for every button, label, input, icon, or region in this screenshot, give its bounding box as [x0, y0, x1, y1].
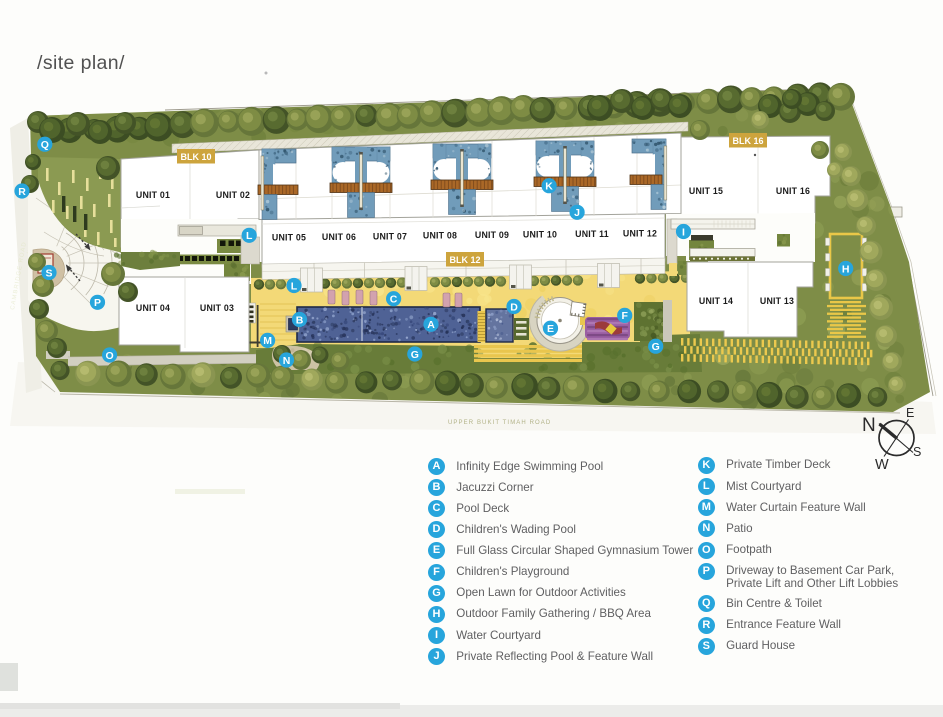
svg-text:BLK 12: BLK 12	[449, 255, 480, 265]
svg-text:Q: Q	[41, 139, 49, 151]
svg-text:C: C	[390, 294, 398, 306]
svg-text:UNIT 15: UNIT 15	[689, 186, 723, 196]
svg-text:B: B	[296, 314, 304, 326]
svg-text:UNIT 12: UNIT 12	[623, 228, 657, 238]
svg-text:UPPER BUKIT TIMAH ROAD: UPPER BUKIT TIMAH ROAD	[448, 420, 551, 426]
svg-text:O: O	[106, 350, 114, 362]
svg-text:F: F	[621, 310, 628, 322]
svg-text:/site plan/: /site plan/	[37, 52, 125, 74]
svg-text:UNIT 05: UNIT 05	[272, 233, 306, 243]
svg-text:UNIT 10: UNIT 10	[523, 230, 557, 240]
svg-text:E: E	[906, 406, 914, 420]
svg-text:UNIT 01: UNIT 01	[136, 190, 170, 200]
svg-text:W: W	[875, 457, 889, 473]
svg-text:N: N	[283, 355, 291, 367]
svg-text:UNIT 04: UNIT 04	[136, 303, 170, 313]
svg-text:G: G	[411, 349, 419, 361]
svg-text:UNIT 14: UNIT 14	[699, 296, 733, 306]
svg-text:UNIT 13: UNIT 13	[760, 296, 794, 306]
svg-text:M: M	[263, 335, 272, 347]
svg-text:N: N	[862, 415, 876, 436]
svg-text:UNIT 03: UNIT 03	[200, 303, 234, 313]
svg-text:UNIT 07: UNIT 07	[373, 231, 407, 241]
svg-text:BLK 16: BLK 16	[732, 136, 763, 146]
svg-text:J: J	[574, 207, 580, 219]
svg-text:UNIT 02: UNIT 02	[216, 190, 250, 200]
svg-text:L: L	[246, 230, 253, 242]
svg-text:UNIT 09: UNIT 09	[475, 230, 509, 240]
svg-text:UNIT 11: UNIT 11	[575, 229, 609, 239]
svg-text:UNIT 16: UNIT 16	[776, 186, 810, 196]
svg-text:A: A	[427, 319, 435, 331]
svg-text:P: P	[94, 297, 101, 309]
svg-text:S: S	[45, 267, 52, 279]
svg-text:G: G	[652, 341, 660, 353]
svg-text:E: E	[547, 323, 554, 335]
svg-text:I: I	[682, 226, 685, 238]
svg-text:UNIT 06: UNIT 06	[322, 232, 356, 242]
svg-text:D: D	[510, 301, 518, 313]
svg-text:R: R	[18, 186, 26, 198]
svg-text:H: H	[842, 263, 850, 275]
svg-text:K: K	[545, 181, 553, 193]
svg-text:UNIT 08: UNIT 08	[423, 231, 457, 241]
svg-text:L: L	[291, 280, 298, 292]
svg-text:BLK 10: BLK 10	[180, 152, 211, 162]
svg-text:S: S	[913, 445, 921, 459]
